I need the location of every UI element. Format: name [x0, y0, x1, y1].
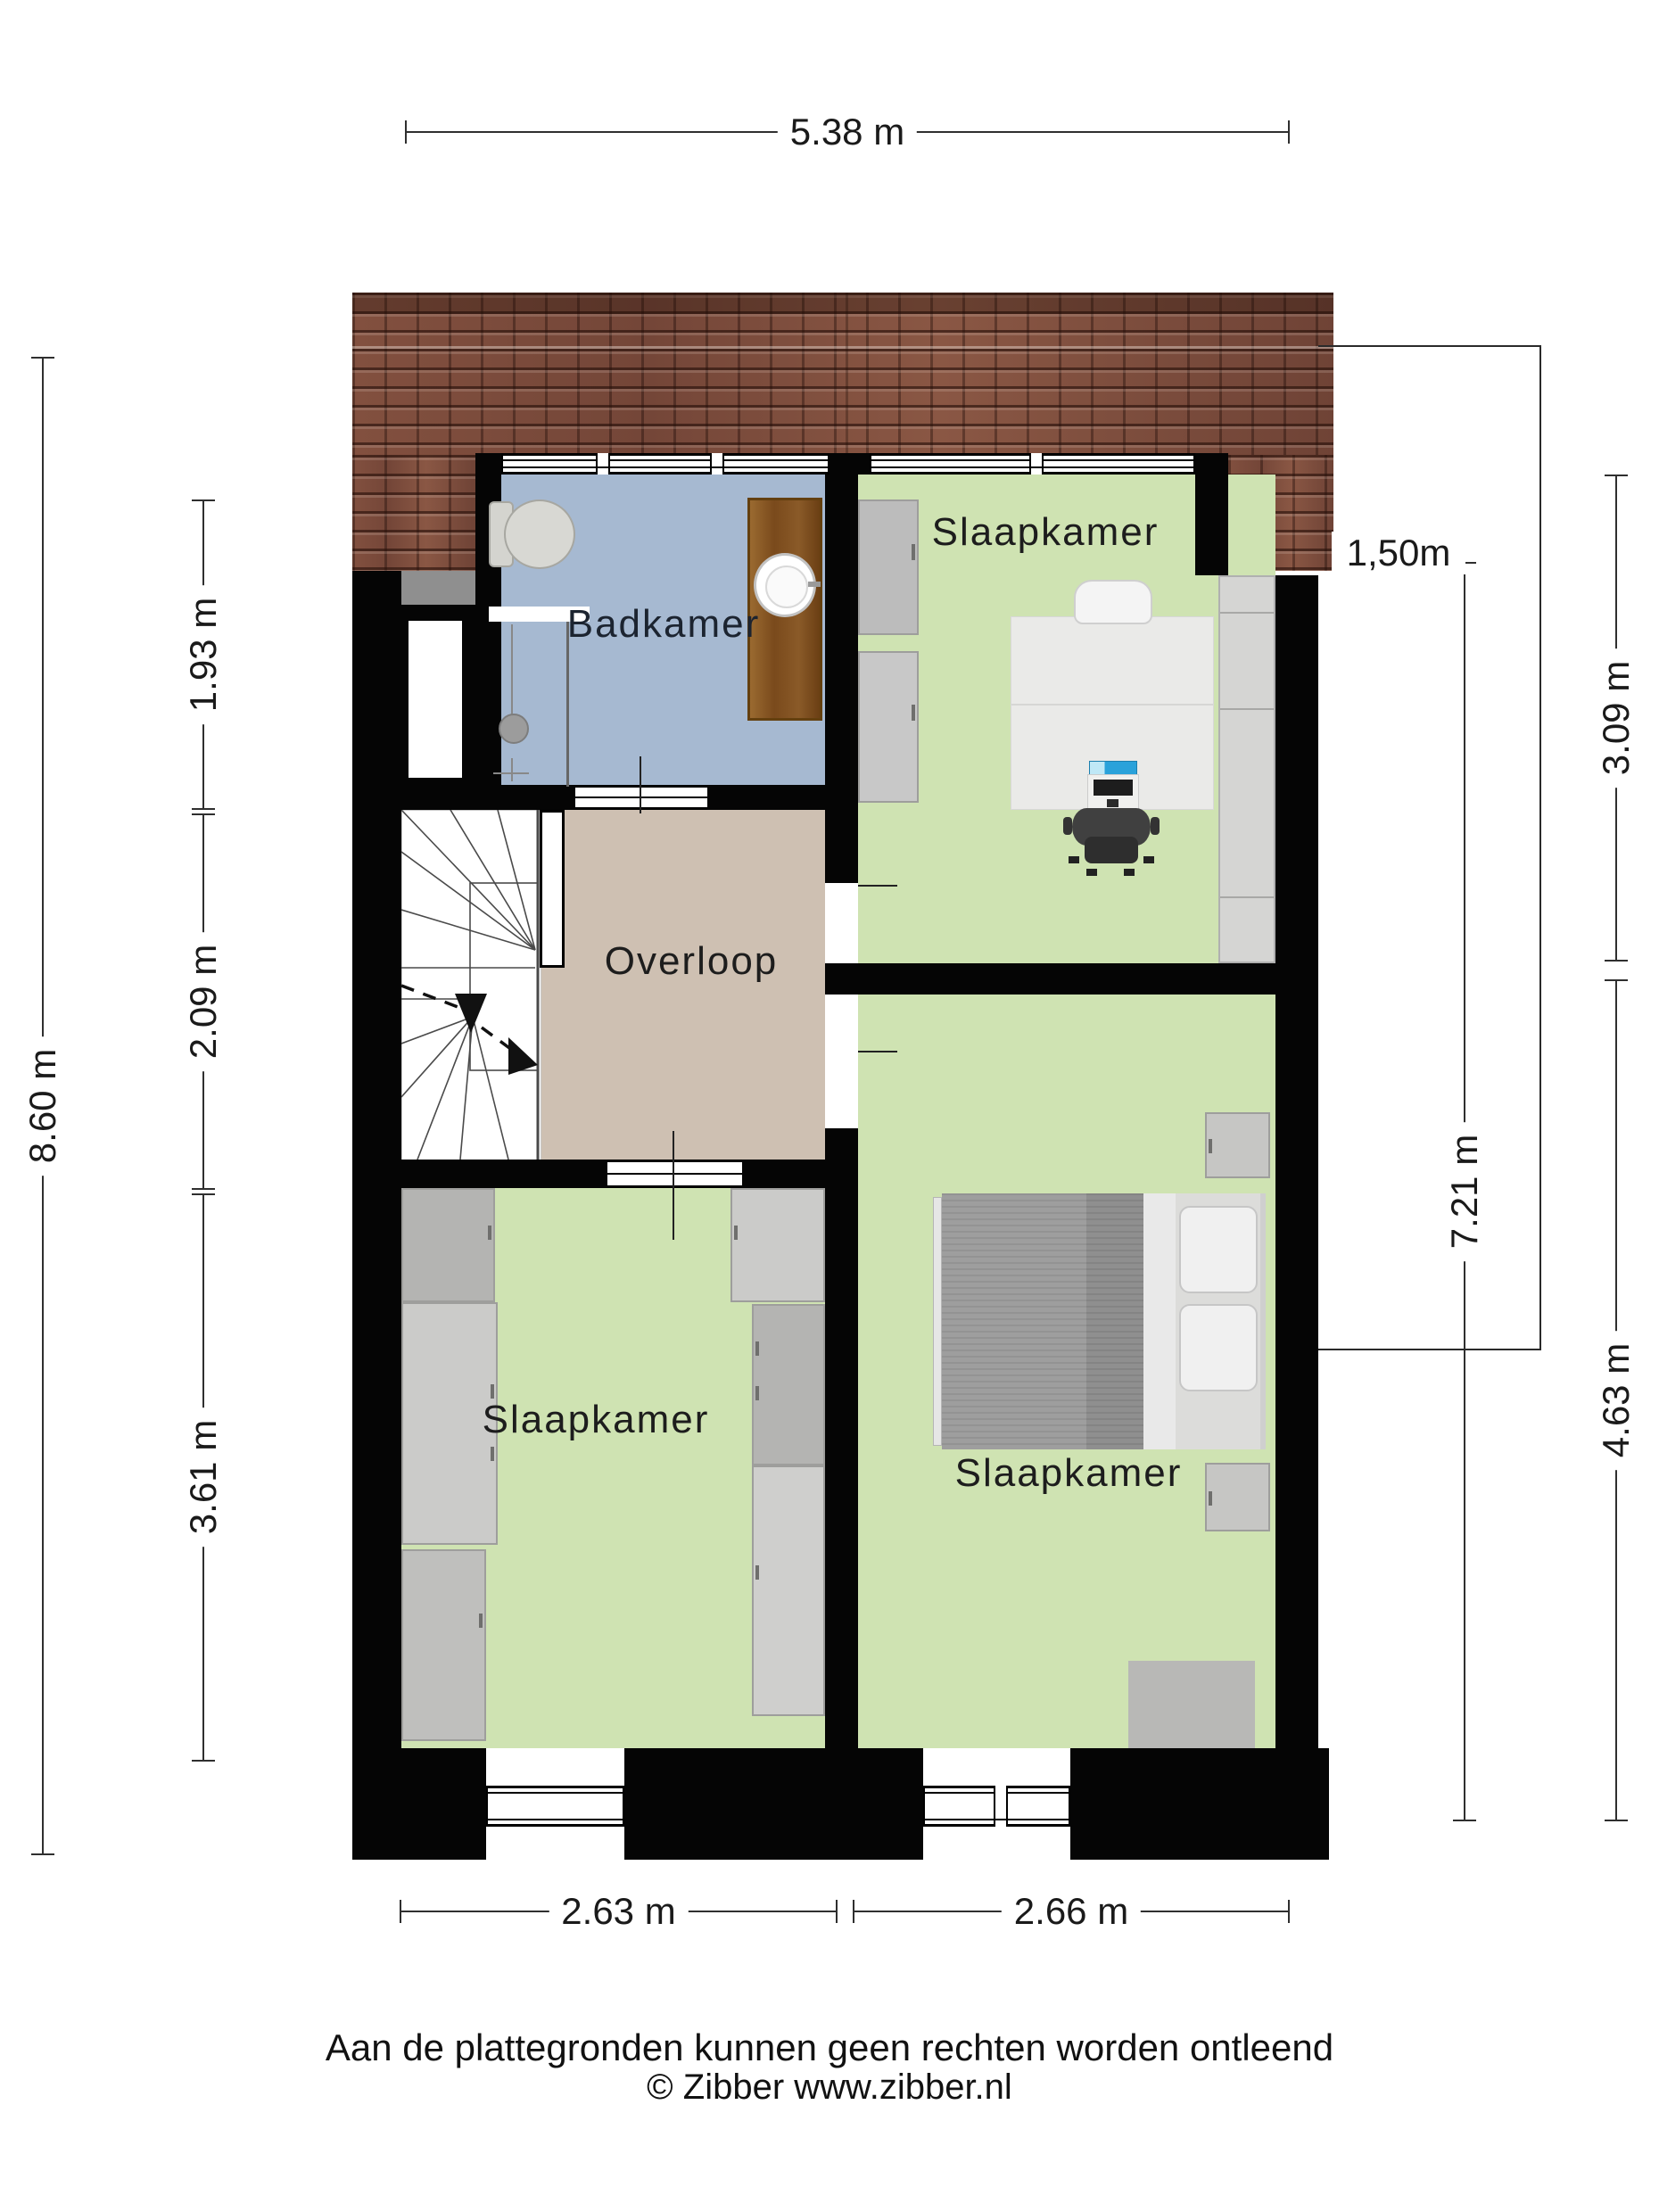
- bathroom-north-window: [501, 453, 829, 475]
- wall-north-mid: [825, 453, 870, 475]
- headroom-label: 1,50m: [1332, 532, 1465, 574]
- wardrobe: [730, 1188, 825, 1302]
- bedroom-top-north-window: [870, 453, 1195, 475]
- dimension-label: 2.63 m: [549, 1888, 688, 1935]
- bedroom-left-south-window: [486, 1786, 624, 1827]
- wall-south-3: [1070, 1748, 1329, 1860]
- landing-label: Overloop: [605, 939, 779, 984]
- void-white-inset: [409, 621, 462, 778]
- window-mullion: [994, 1786, 1008, 1827]
- landing-south-door: [607, 1160, 742, 1188]
- office-chair-armrest: [1063, 817, 1072, 835]
- wardrobe: [858, 651, 919, 803]
- bed-duvet: [942, 1193, 1086, 1449]
- wardrobe: [858, 499, 919, 635]
- stair-railing: [540, 810, 565, 968]
- roof-top-shadow: [352, 293, 1333, 314]
- footer-credit: © Zibber www.zibber.nl: [0, 2068, 1659, 2108]
- headroom-bracket-bottom: [1318, 1349, 1541, 1350]
- office-chair-foot: [1143, 856, 1154, 863]
- dimension-label: 8.60 m: [20, 1036, 66, 1176]
- void-gray-block: [401, 571, 475, 605]
- wall-west: [352, 571, 401, 1860]
- landing-floor: [540, 810, 825, 1160]
- window-mullion: [1029, 453, 1044, 475]
- dimension-landing-depth: 2.09 m: [202, 813, 204, 1190]
- wall-north-right-corner: [1195, 453, 1228, 575]
- dimension-label: 5.38 m: [778, 109, 917, 155]
- bedroom-right-label: Slaapkamer: [955, 1451, 1183, 1496]
- roof-left-extension: [352, 455, 475, 571]
- mouse: [1107, 799, 1118, 807]
- dresser: [1128, 1661, 1255, 1748]
- shower-pole: [511, 624, 513, 722]
- dimension-bedroom-top-depth: 3.09 m: [1615, 475, 1617, 962]
- stairs: [401, 810, 540, 1160]
- headroom-bracket-right: [1539, 345, 1541, 1350]
- wall-spine-stub: [825, 963, 858, 995]
- dimension-bathroom-depth: 1.93 m: [202, 499, 204, 810]
- bedroom-right-south-window-opening: [923, 1748, 1070, 1860]
- nightstand: [1205, 1463, 1270, 1531]
- dimension-label: 7.21 m: [1441, 1122, 1488, 1261]
- wardrobe-strip: [1218, 575, 1275, 963]
- bed-sheet: [1143, 1193, 1176, 1449]
- wardrobe: [401, 1549, 486, 1741]
- wall-bathroom-south-right: [707, 785, 825, 810]
- wall-south-1: [352, 1748, 486, 1860]
- wall-bathroom-south-left: [489, 785, 575, 810]
- dimension-bedroom-left-depth: 3.61 m: [202, 1193, 204, 1762]
- wall-landing-south-left: [352, 1160, 607, 1188]
- sink-tap: [808, 582, 821, 587]
- bedroom-top-label: Slaapkamer: [932, 510, 1160, 555]
- dimension-label: 2.09 m: [180, 932, 227, 1071]
- bedroom-top-door-opening: [825, 883, 858, 963]
- keyboard: [1094, 780, 1133, 796]
- dimension-top-width: 5.38 m: [405, 131, 1290, 133]
- double-bed: [933, 1193, 1266, 1449]
- office-chair-seat: [1085, 837, 1138, 863]
- pillow: [1179, 1304, 1258, 1391]
- bedroom-right-door-opening: [825, 995, 858, 1128]
- wall-between-right-bedrooms: [858, 963, 1275, 995]
- office-chair-foot: [1069, 856, 1079, 863]
- wall-east: [1275, 575, 1318, 1748]
- dimension-label: 3.61 m: [180, 1407, 227, 1547]
- bathroom-door: [575, 785, 707, 810]
- office-chair-foot: [1124, 869, 1135, 876]
- guest-chair: [1074, 580, 1152, 624]
- roof-seam: [352, 346, 1333, 349]
- dimension-label: 4.63 m: [1593, 1331, 1639, 1470]
- dimension-bottom-right: 2.66 m: [853, 1911, 1290, 1912]
- dimension-left-total: 8.60 m: [42, 357, 44, 1855]
- stair-direction-arrows: [455, 994, 538, 1075]
- office-chair-armrest: [1151, 817, 1160, 835]
- bedroom-right-door-tick: [858, 1051, 897, 1052]
- window-mullion: [710, 453, 724, 475]
- shower-head: [499, 714, 529, 744]
- dimension-label: 2.66 m: [1002, 1888, 1141, 1935]
- bed-headboard: [1260, 1193, 1266, 1449]
- bathroom-label: Badkamer: [567, 602, 761, 647]
- bedroom-top-door-tick: [858, 885, 897, 887]
- roof-ridge: [846, 293, 848, 455]
- pillow: [1179, 1206, 1258, 1293]
- dimension-bottom-left: 2.63 m: [400, 1911, 838, 1912]
- bedroom-left-south-window-opening: [486, 1748, 624, 1860]
- wall-spine-upper: [825, 475, 858, 883]
- bedroom-right-south-window: [923, 1786, 1070, 1827]
- landing-door-tick: [673, 1131, 674, 1240]
- nightstand: [1205, 1112, 1270, 1178]
- office-chair-foot: [1086, 869, 1097, 876]
- bed-duvet-fold: [1086, 1193, 1143, 1449]
- sink-basin: [765, 565, 808, 608]
- dimension-right-inner: 7.21 m: [1464, 562, 1465, 1821]
- dimension-label: 1.93 m: [180, 585, 227, 724]
- bathroom-door-tick: [640, 756, 641, 813]
- roof-band: [352, 293, 1333, 455]
- dimension-label: 3.09 m: [1593, 648, 1639, 788]
- footer-disclaimer: Aan de plattegronden kunnen geen rechten…: [0, 2026, 1659, 2069]
- wardrobe: [401, 1188, 495, 1302]
- wall-spine-lower: [825, 1128, 858, 1748]
- floorplan-page: Badkamer Slaapkamer Overloop Slaapkamer …: [0, 0, 1659, 2212]
- wall-landing-south-right: [742, 1160, 858, 1188]
- dimension-bedroom-right-depth: 4.63 m: [1615, 979, 1617, 1821]
- bedroom-left-label: Slaapkamer: [483, 1398, 710, 1442]
- wardrobe: [752, 1465, 825, 1716]
- wall-south-2: [624, 1748, 923, 1860]
- wardrobe: [752, 1304, 825, 1465]
- toilet-bowl: [504, 499, 575, 569]
- window-mullion: [596, 453, 610, 475]
- bed-footboard: [933, 1197, 942, 1446]
- headroom-bracket-top: [1318, 345, 1541, 347]
- shower-faucet-stem: [511, 758, 513, 781]
